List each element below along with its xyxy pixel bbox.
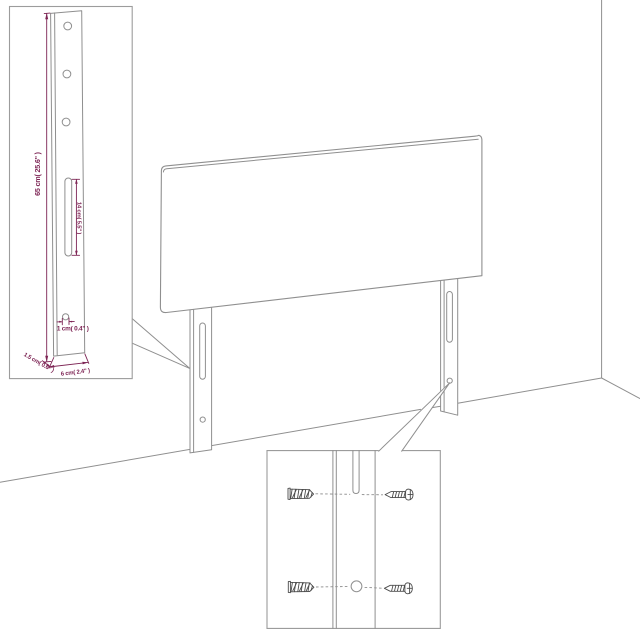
- diagram-canvas: 65 cm( 25.6" ) 14 cm( 5.5" ) 1 cm( 0.4" …: [0, 0, 640, 640]
- right-leg: [441, 272, 458, 416]
- detail-inset: 65 cm( 25.6" ) 14 cm( 5.5" ) 1 cm( 0.4" …: [10, 7, 133, 379]
- callout-lines-right: [379, 383, 450, 451]
- left-leg-hole: [200, 417, 205, 422]
- hardware-inset: [267, 451, 440, 629]
- post-hole-1: [64, 22, 72, 30]
- right-leg-slot: [447, 292, 453, 343]
- hole-dimension-label: 1 cm( 0.4" ): [57, 326, 89, 333]
- post-hole-2: [63, 70, 71, 78]
- floor-line-right: [602, 378, 640, 399]
- callout-lines-left: [132, 319, 190, 369]
- height-dimension-label: 65 cm( 25.6" ): [33, 151, 42, 196]
- left-leg: [190, 297, 212, 453]
- post-bottom-hole: [63, 314, 69, 320]
- hardware-inset-fill: [267, 451, 440, 629]
- post-hole-3: [62, 118, 70, 126]
- headboard-panel: [160, 135, 482, 312]
- panel-outline: [160, 135, 482, 312]
- product-diagram: 65 cm( 25.6" ) 14 cm( 5.5" ) 1 cm( 0.4" …: [0, 0, 640, 640]
- left-leg-slot: [200, 323, 206, 379]
- slot-dimension-label: 14 cm( 5.5" ): [76, 202, 82, 235]
- post-slot: [65, 178, 72, 256]
- inset-leg-hole: [351, 581, 362, 592]
